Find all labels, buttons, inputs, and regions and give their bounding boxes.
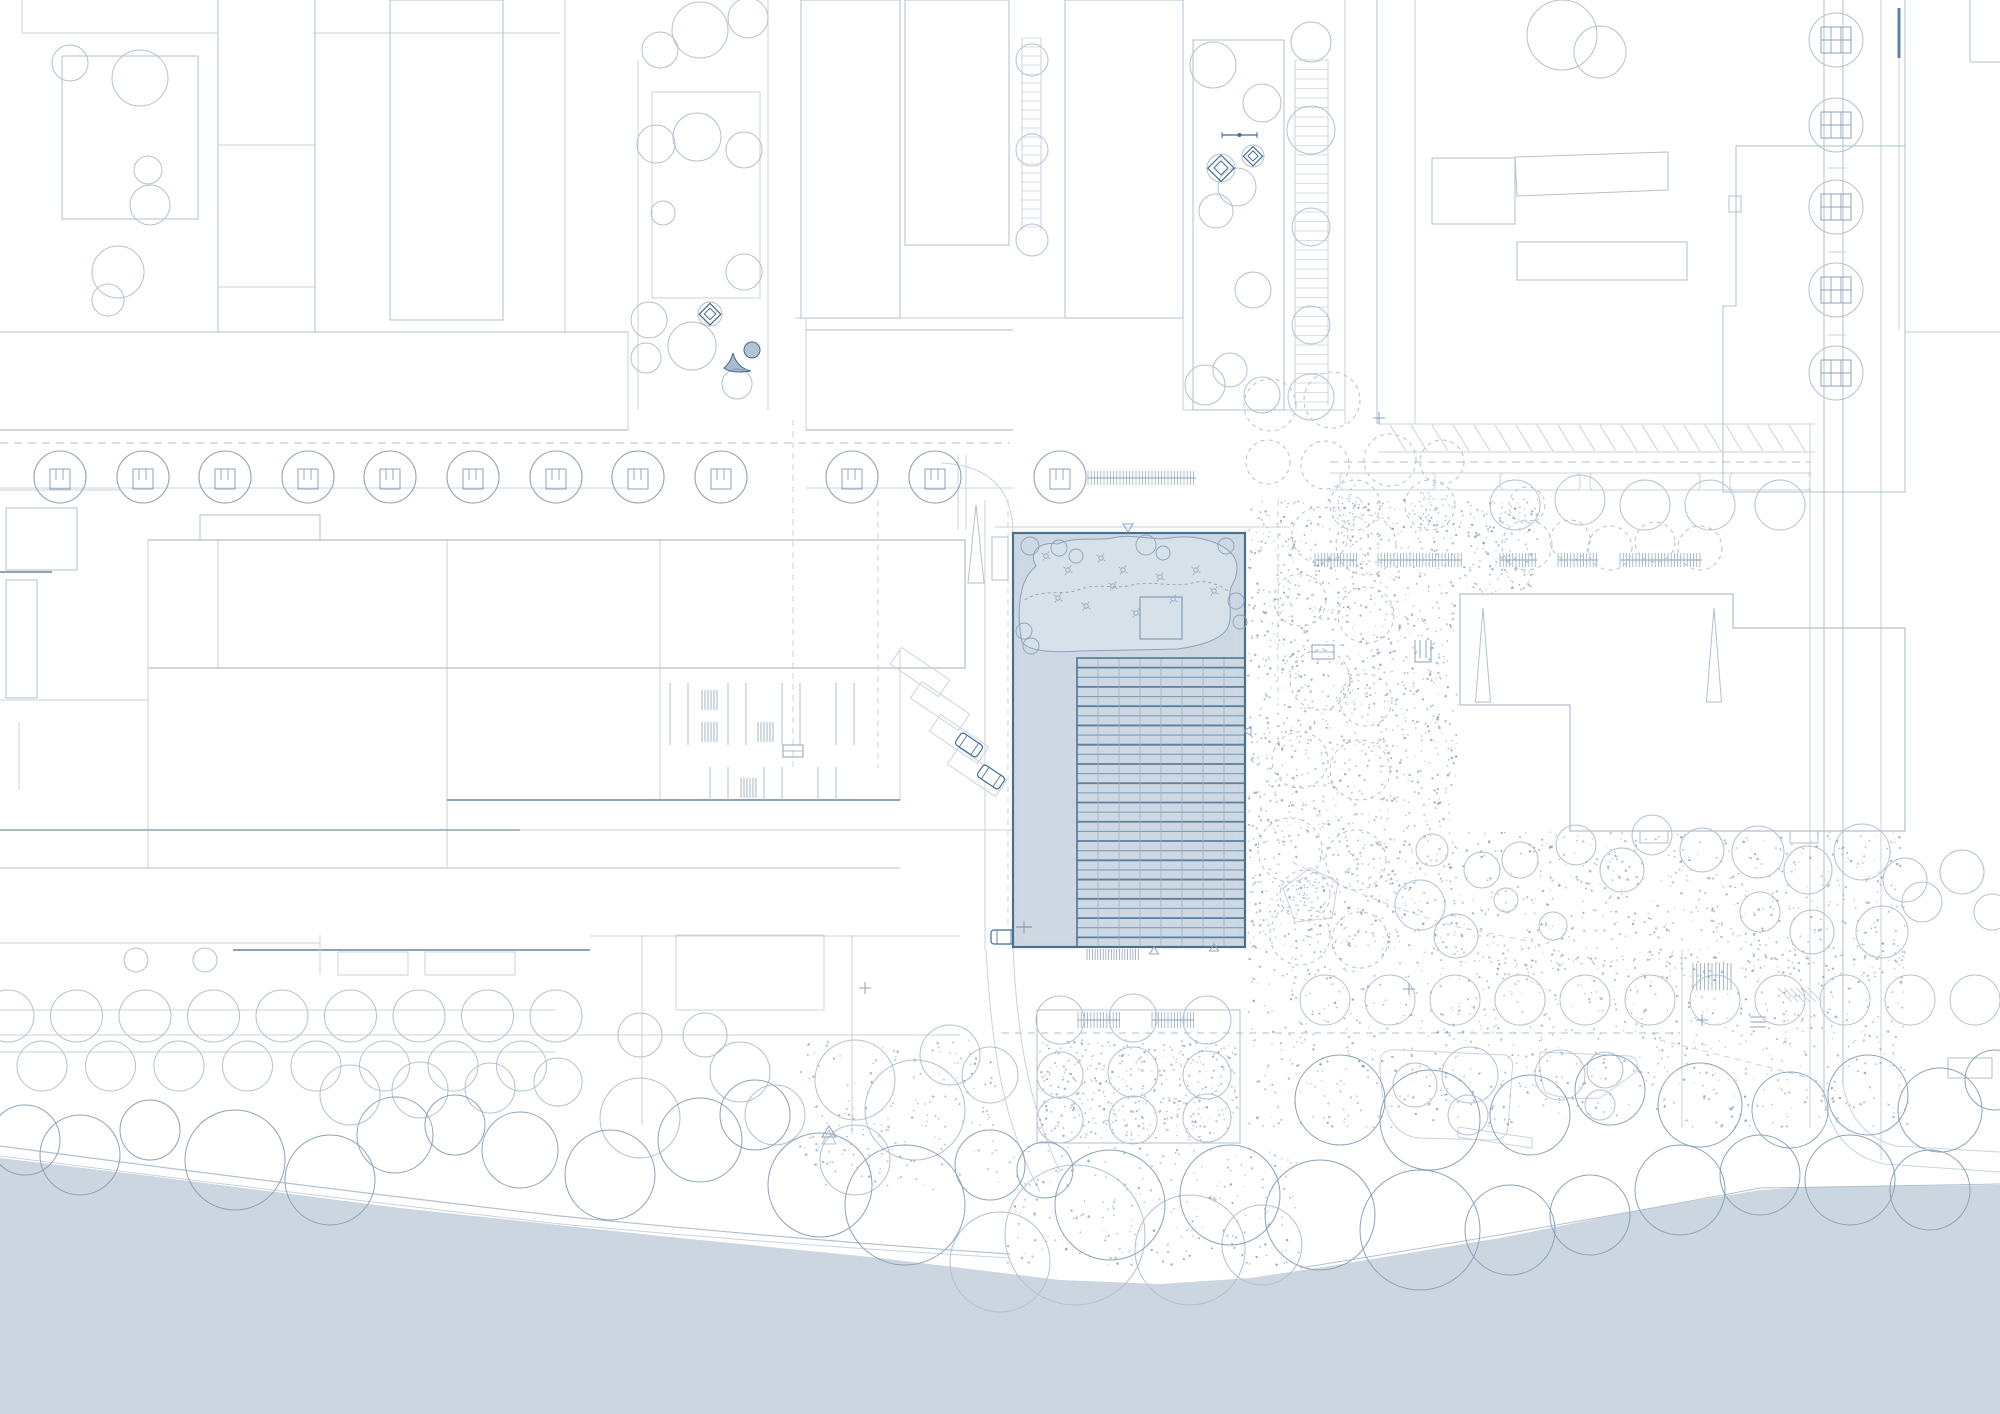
street-tree-icon <box>282 451 334 503</box>
skylight-diamond-icon <box>698 302 722 326</box>
site-plan <box>0 0 2000 1414</box>
city-blocks <box>0 0 2000 1192</box>
street-tree-icon <box>909 451 961 503</box>
vegetation <box>0 0 2000 1312</box>
street-tree-icon <box>364 451 416 503</box>
street-tree-icon <box>826 451 878 503</box>
street-tree-icon <box>1809 180 1863 234</box>
street-tree-icon <box>612 451 664 503</box>
site-plan-canvas <box>0 0 2000 1414</box>
main-building <box>1013 533 1247 947</box>
street-tree-icon <box>199 451 251 503</box>
street-tree-icon <box>530 451 582 503</box>
street-tree-icon <box>695 451 747 503</box>
skylight-diamond-icon <box>1207 154 1235 182</box>
street-tree-icon <box>1034 451 1086 503</box>
street-tree-icon <box>34 451 86 503</box>
street-tree-icon <box>1809 263 1863 317</box>
water-area <box>0 1146 2000 1414</box>
street-tree-icon <box>1809 98 1863 152</box>
street-tree-icon <box>1809 13 1863 67</box>
street-tree-icon <box>117 451 169 503</box>
street-tree-icon <box>447 451 499 503</box>
skylight-diamond-icon <box>1242 145 1264 167</box>
car-icon <box>954 732 983 758</box>
street-tree-icon <box>1809 346 1863 400</box>
